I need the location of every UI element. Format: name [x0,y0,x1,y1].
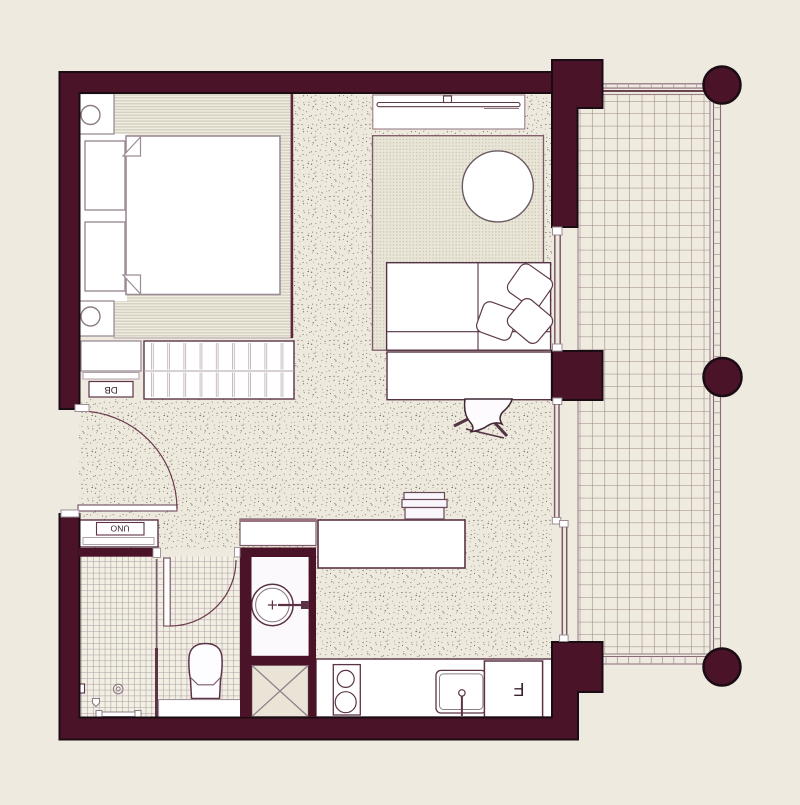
svg-text:DB: DB [104,384,117,395]
svg-text:F: F [514,679,525,699]
svg-text:UNO: UNO [110,523,129,533]
